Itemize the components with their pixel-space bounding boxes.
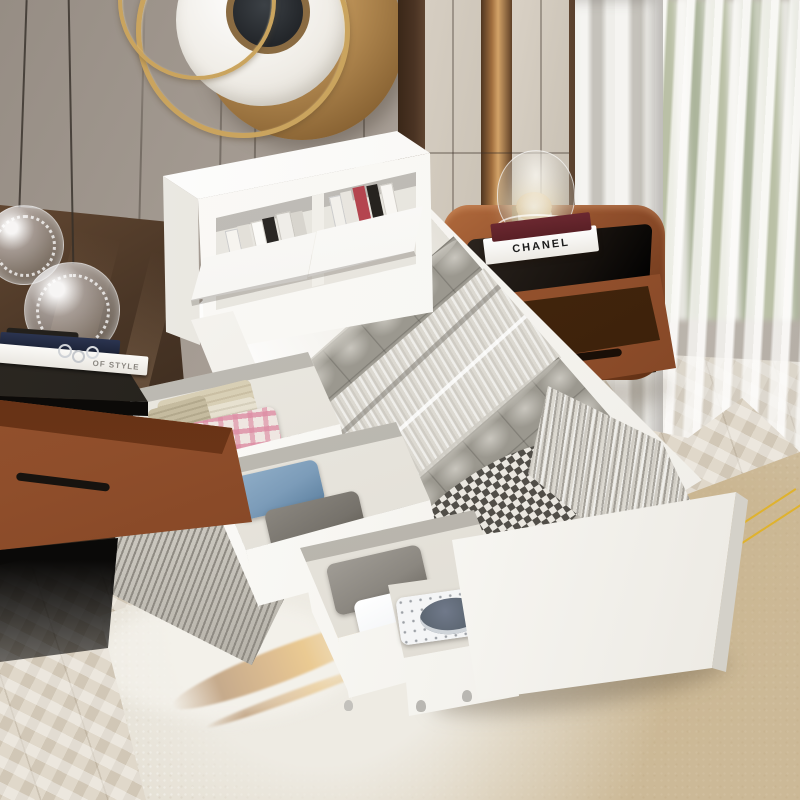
chain-link [86, 346, 99, 359]
chain-link [58, 344, 72, 358]
bedroom-product-photo: White single storage bed with bookshelf … [0, 0, 800, 800]
caster-wheel [416, 700, 426, 712]
chanel-book-title: CHANEL [512, 237, 571, 256]
chain-link [72, 350, 85, 363]
style-book-title: OF STYLE [92, 359, 140, 372]
caster-wheel [344, 700, 353, 711]
caster-wheel [462, 690, 472, 702]
